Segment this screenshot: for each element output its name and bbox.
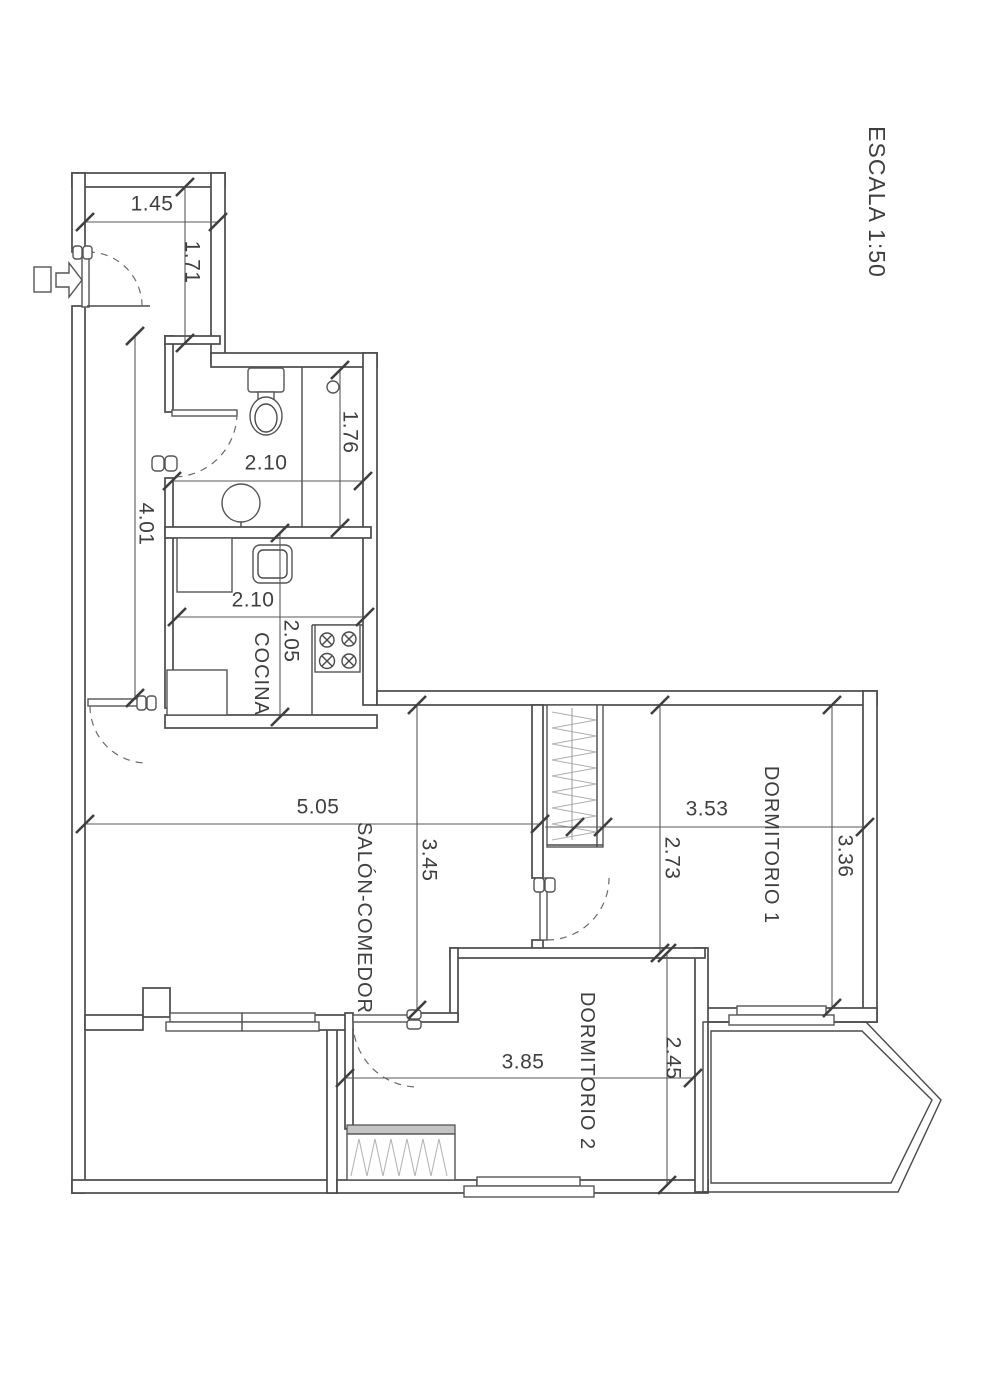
bedroom2-door <box>353 1010 421 1087</box>
door-hinge-icon <box>137 696 146 710</box>
dim-kitchen-width: 2.10 <box>232 589 275 612</box>
dim-living-width: 5.05 <box>297 796 340 819</box>
bedroom2-wardrobe <box>347 1125 455 1180</box>
room-label-kitchen: COCINA <box>250 632 272 716</box>
bathroom-fixtures <box>222 368 339 527</box>
hall-to-living-door <box>88 696 156 763</box>
dim-bedroom1-width: 3.53 <box>686 798 729 821</box>
room-label-living: SALÓN-COMEDOR <box>353 822 376 1014</box>
door-hinge-icon <box>545 878 555 892</box>
dim-kitchen-depth: 2.05 <box>280 620 303 663</box>
terrace-bay <box>703 1022 941 1192</box>
dim-bedroom2-depth: 2.45 <box>662 1037 685 1080</box>
drain-icon <box>327 381 339 393</box>
door-hinge-icon <box>534 878 544 892</box>
dim-living-depth: 3.45 <box>418 839 441 882</box>
stove <box>315 625 360 672</box>
dim-entry-width: 1.45 <box>131 193 174 216</box>
living-room-window <box>166 1013 319 1031</box>
bedroom2-window <box>464 1177 594 1197</box>
dimension-labels: 1.45 1.71 4.01 2.10 1.76 2.10 2.05 5.05 … <box>131 193 857 1080</box>
entry-arrow-icon <box>34 263 82 297</box>
dim-bedroom1-depth: 3.36 <box>834 835 857 878</box>
door-hinge-icon <box>73 246 82 259</box>
door-hinge-icon <box>83 246 92 259</box>
toilet-tank <box>248 368 284 392</box>
room-label-bedroom1: DORMITORIO 1 <box>760 766 782 924</box>
door-hinge-icon <box>152 456 164 471</box>
floor-plan-page: 1.45 1.71 4.01 2.10 1.76 2.10 2.05 5.05 … <box>0 0 989 1400</box>
dim-bedroom2-width: 3.85 <box>502 1051 545 1074</box>
door-hinge-icon <box>407 1020 421 1029</box>
dim-inner-hall-depth: 2.73 <box>661 837 684 880</box>
bedroom1-door <box>534 878 609 940</box>
dim-bath-width: 2.10 <box>245 452 288 475</box>
pillar <box>143 988 170 1017</box>
dim-bath-depth: 1.76 <box>339 411 362 454</box>
door-hinge-icon <box>147 696 156 710</box>
bedroom1-window <box>729 1006 834 1025</box>
floor-plan-drawing: 1.45 1.71 4.01 2.10 1.76 2.10 2.05 5.05 … <box>0 0 989 1400</box>
bathroom-door <box>152 410 237 477</box>
room-label-bedroom2: DORMITORIO 2 <box>576 992 598 1150</box>
door-hinge-icon <box>165 456 177 471</box>
scale-label: ESCALA 1:50 <box>864 126 890 278</box>
appliance-box <box>177 538 232 592</box>
washbasin <box>222 484 260 522</box>
entrance-door <box>73 246 150 307</box>
dim-corridor-length: 4.01 <box>135 503 158 546</box>
appliance-box <box>167 670 227 715</box>
dim-entry-depth: 1.71 <box>181 241 204 284</box>
